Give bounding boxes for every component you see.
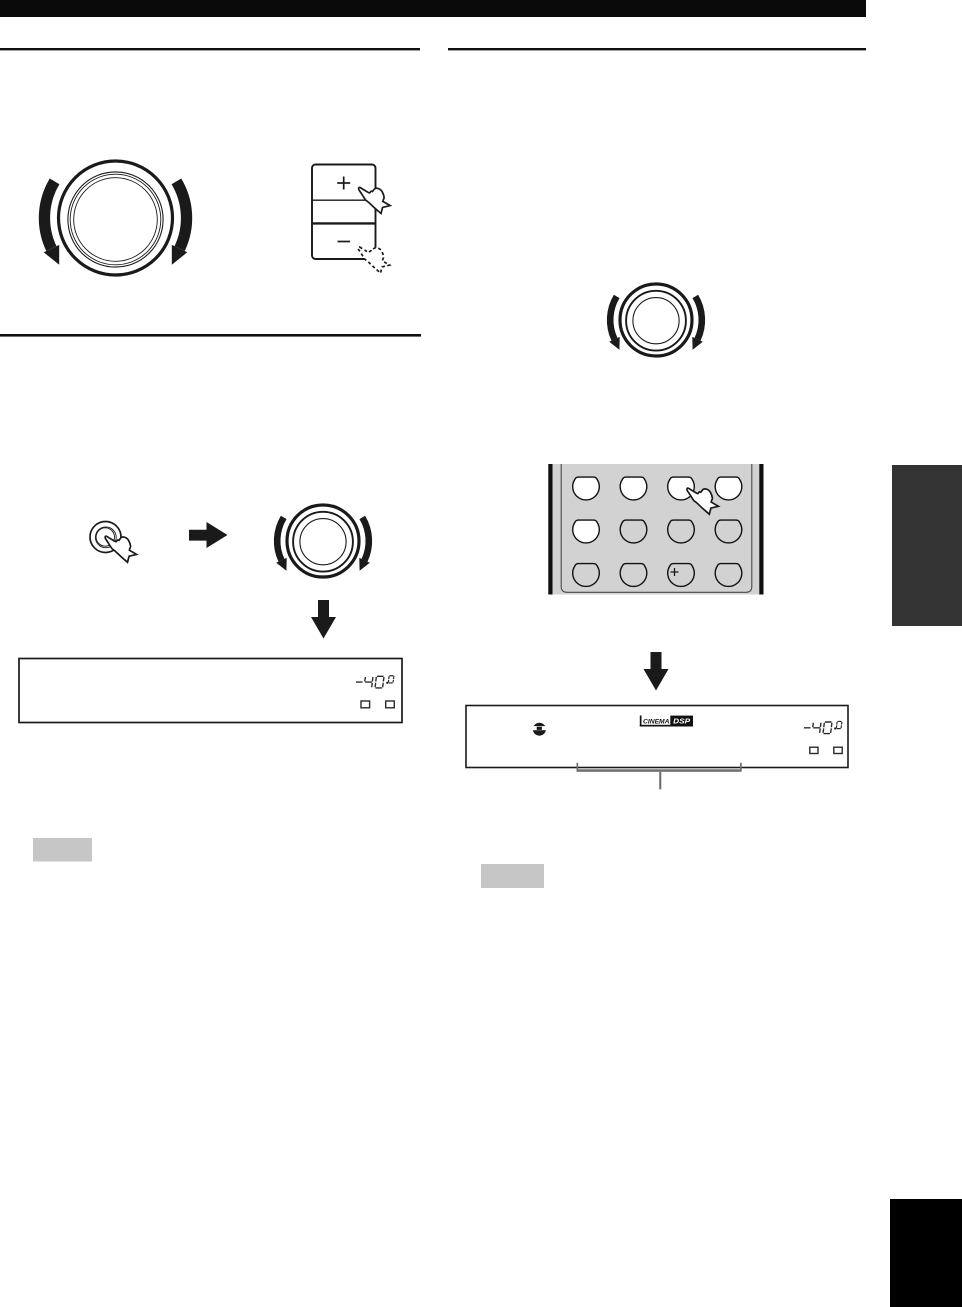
- svg-text:CINEMA: CINEMA: [643, 718, 670, 725]
- svg-text:DSP: DSP: [673, 719, 690, 726]
